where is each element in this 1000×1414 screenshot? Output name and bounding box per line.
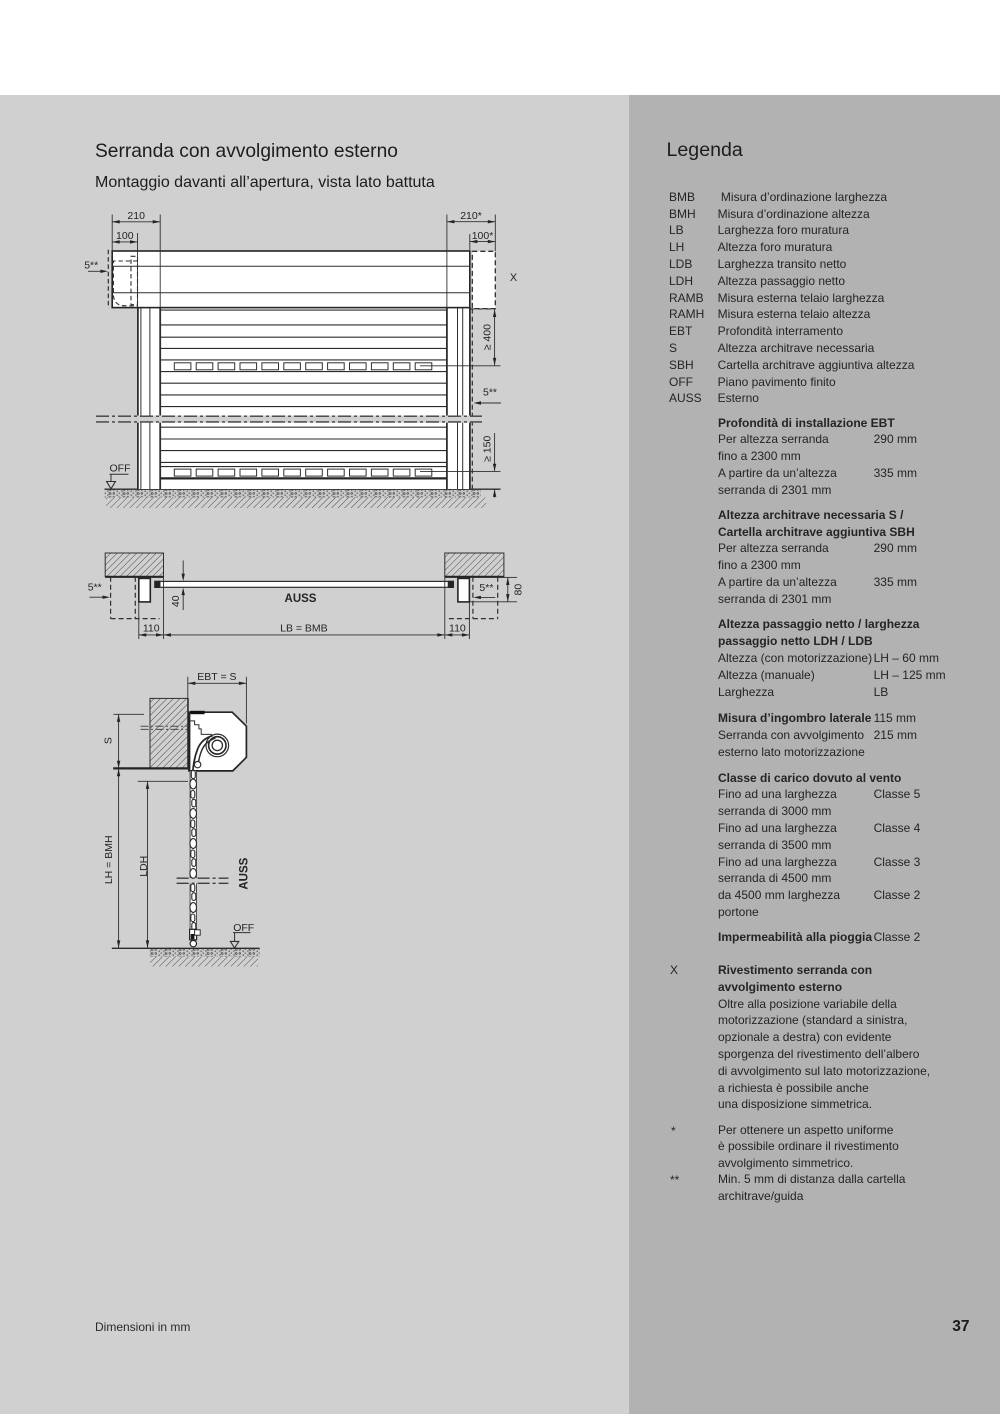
svg-text:LDH: LDH (138, 856, 150, 877)
svg-text:S: S (102, 737, 114, 744)
svg-text:AUSS: AUSS (285, 593, 317, 605)
svg-text:OFF: OFF (110, 462, 131, 474)
svg-text:LB = BMB: LB = BMB (280, 622, 328, 634)
svg-text:LH = BMH: LH = BMH (103, 835, 115, 884)
svg-text:5**: 5** (483, 387, 497, 399)
svg-text:AUSS: AUSS (239, 857, 251, 889)
svg-text:40: 40 (170, 595, 182, 607)
svg-text:≥ 150: ≥ 150 (482, 436, 494, 462)
svg-text:100*: 100* (472, 230, 494, 242)
svg-text:210: 210 (127, 210, 145, 222)
svg-text:100: 100 (116, 230, 134, 242)
svg-text:5**: 5** (88, 582, 102, 594)
svg-text:110: 110 (449, 622, 466, 634)
svg-text:80: 80 (512, 584, 524, 596)
svg-text:EBT = S: EBT = S (197, 671, 236, 683)
svg-text:5**: 5** (84, 260, 98, 272)
svg-text:210*: 210* (460, 210, 482, 222)
svg-text:5**: 5** (479, 582, 493, 594)
svg-text:110: 110 (143, 622, 160, 634)
svg-text:X: X (510, 272, 517, 284)
svg-text:≥ 400: ≥ 400 (482, 324, 494, 350)
